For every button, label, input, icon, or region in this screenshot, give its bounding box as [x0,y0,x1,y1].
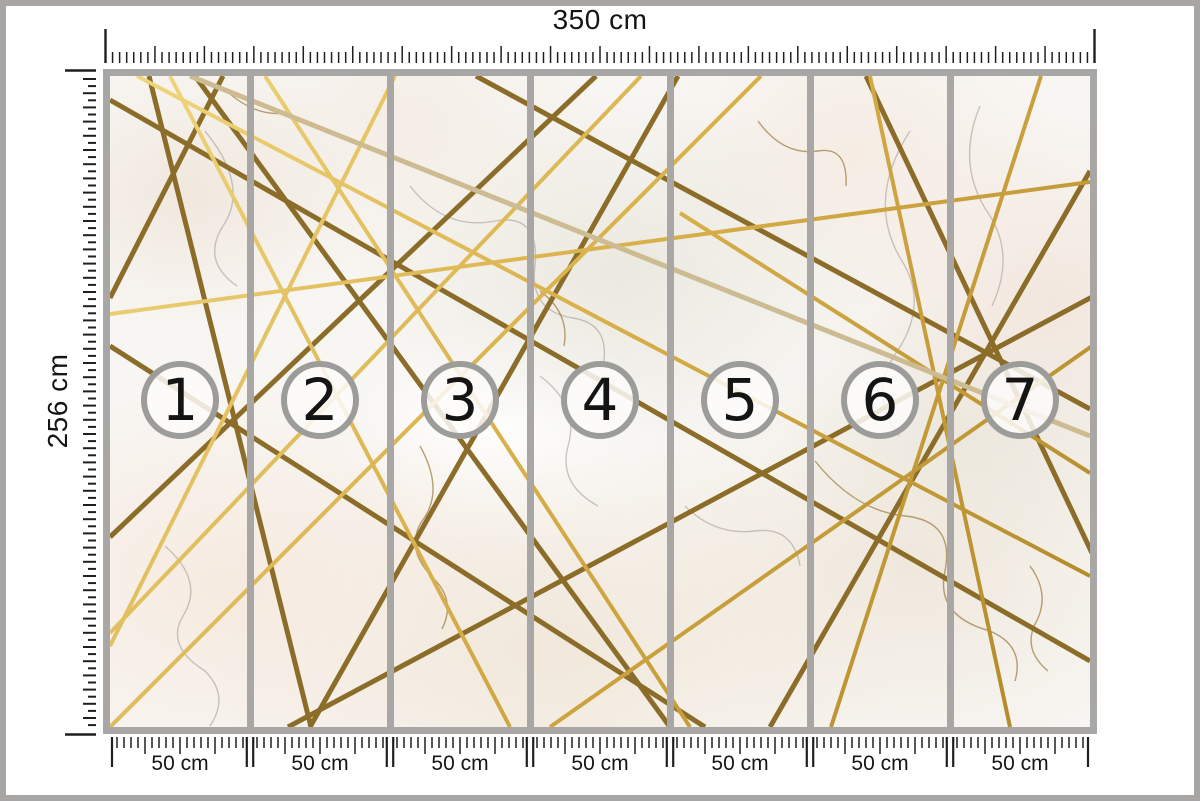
gold-line-bright [110,76,641,633]
marble-vein [685,506,800,566]
panel-divider [807,76,814,727]
top-ruler-ticks [103,29,1097,63]
marble-crack [758,121,846,186]
panel-number: 3 [442,370,479,430]
panel-width-label: 50 cm [250,752,390,776]
panel-width-label: 50 cm [530,752,670,776]
panel-number: 4 [582,370,619,430]
left-ruler-ticks [62,68,100,738]
marble-vein [410,186,604,366]
panel-number: 2 [302,370,339,430]
marble-crack [815,461,1017,681]
panel-number-badge: 7 [981,361,1059,439]
wallpaper-mural-frame: 1234567 [103,69,1097,734]
marble-crack [1030,566,1048,671]
marble-artwork: 1234567 [110,76,1090,727]
panel-divider [947,76,954,727]
panel-number: 7 [1002,370,1039,430]
panel-number: 6 [862,370,899,430]
panel-width-label: 50 cm [390,752,530,776]
panel-number: 5 [722,370,759,430]
panel-number-badge: 5 [701,361,779,439]
panel-divider [667,76,674,727]
panel-divider [247,76,254,727]
panel-width-label: 50 cm [950,752,1090,776]
panel-width-label: 50 cm [810,752,950,776]
panel-number: 1 [162,370,199,430]
panel-number-badge: 2 [281,361,359,439]
panel-width-label: 50 cm [110,752,250,776]
panel-number-badge: 3 [421,361,499,439]
panel-number-badge: 4 [561,361,639,439]
gold-line-bright [110,182,1090,314]
panel-divider [527,76,534,727]
marble-vein [165,546,219,726]
panel-number-badge: 6 [841,361,919,439]
panel-divider [387,76,394,727]
panel-number-badge: 1 [141,361,219,439]
panel-width-label: 50 cm [670,752,810,776]
